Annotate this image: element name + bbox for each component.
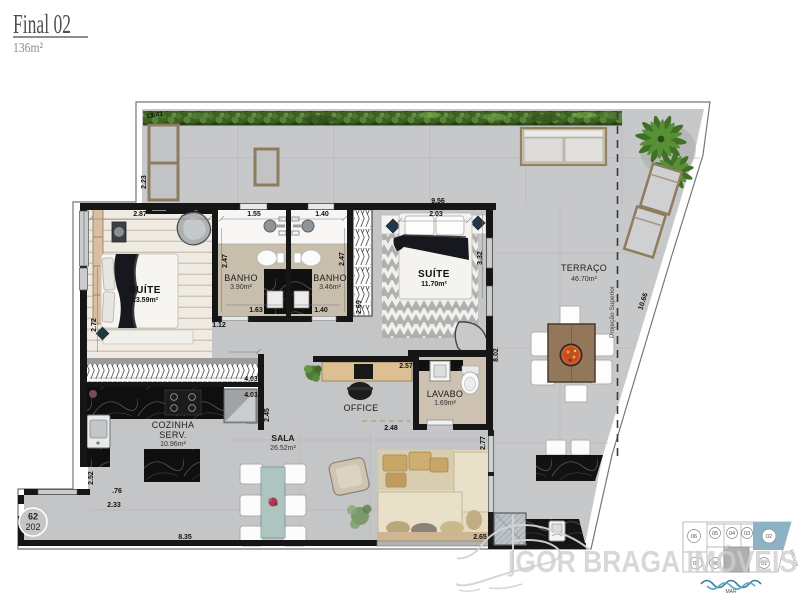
svg-text:SUÍTE: SUÍTE — [418, 267, 450, 280]
svg-text:2.23: 2.23 — [141, 175, 148, 189]
svg-text:BANHO: BANHO — [224, 273, 258, 283]
svg-text:LAVABO: LAVABO — [427, 389, 463, 399]
svg-text:Projeção Superior: Projeção Superior — [609, 285, 616, 338]
svg-text:06: 06 — [691, 534, 697, 540]
svg-text:COZINHA: COZINHA — [152, 420, 195, 430]
svg-text:202: 202 — [25, 522, 40, 532]
svg-text:3.90m²: 3.90m² — [230, 284, 252, 291]
svg-text:05: 05 — [712, 531, 718, 537]
svg-text:1.55: 1.55 — [247, 211, 261, 218]
svg-text:OFFICE: OFFICE — [344, 403, 379, 413]
svg-text:46.70m²: 46.70m² — [571, 276, 597, 283]
svg-text:2.69: 2.69 — [356, 300, 363, 314]
svg-text:2.33: 2.33 — [107, 502, 121, 509]
svg-text:02: 02 — [766, 534, 772, 540]
svg-text:26.52m²: 26.52m² — [270, 445, 296, 452]
svg-text:2.77: 2.77 — [480, 436, 487, 450]
svg-text:2.47: 2.47 — [339, 252, 346, 266]
svg-text:SALA: SALA — [271, 433, 294, 443]
svg-text:1.40: 1.40 — [314, 307, 328, 314]
svg-text:SUÍTE: SUÍTE — [129, 283, 161, 296]
svg-text:2.72: 2.72 — [91, 318, 98, 332]
svg-text:9.56: 9.56 — [431, 198, 445, 205]
svg-text:Final 02: Final 02 — [13, 9, 71, 39]
svg-text:1.63: 1.63 — [249, 307, 263, 314]
svg-text:SERV.: SERV. — [159, 430, 187, 440]
svg-text:BANHO: BANHO — [313, 273, 347, 283]
svg-text:1.69m²: 1.69m² — [434, 400, 456, 407]
svg-text:3.46m²: 3.46m² — [319, 284, 341, 291]
svg-text:136m²: 136m² — [13, 41, 43, 56]
svg-text:04: 04 — [729, 531, 735, 537]
svg-text:2.03: 2.03 — [429, 211, 443, 218]
svg-text:4.03: 4.03 — [244, 376, 258, 383]
svg-text:4.03: 4.03 — [244, 392, 258, 399]
svg-text:.76: .76 — [112, 488, 122, 495]
svg-text:62: 62 — [28, 512, 38, 522]
svg-text:1.40: 1.40 — [315, 211, 329, 218]
svg-text:8.35: 8.35 — [178, 534, 192, 541]
svg-text:10.96m²: 10.96m² — [160, 441, 186, 448]
svg-text:IGOR BRAGA IMÓVEIS: IGOR BRAGA IMÓVEIS — [508, 543, 797, 579]
svg-text:2.52: 2.52 — [88, 471, 95, 485]
svg-text:2.87: 2.87 — [133, 211, 147, 218]
svg-text:2.45: 2.45 — [264, 408, 271, 422]
svg-text:TERRAÇO: TERRAÇO — [561, 263, 607, 273]
svg-text:3.32: 3.32 — [477, 251, 484, 265]
svg-text:03: 03 — [744, 531, 750, 537]
svg-text:2.47: 2.47 — [222, 254, 229, 268]
svg-text:2.57: 2.57 — [399, 363, 413, 370]
svg-text:MAR: MAR — [725, 589, 737, 595]
svg-text:13.59m²: 13.59m² — [132, 297, 159, 304]
svg-text:1.12: 1.12 — [212, 322, 226, 329]
svg-text:2.48: 2.48 — [384, 425, 398, 432]
svg-text:8.02: 8.02 — [493, 348, 500, 362]
svg-text:11.70m²: 11.70m² — [421, 281, 447, 288]
